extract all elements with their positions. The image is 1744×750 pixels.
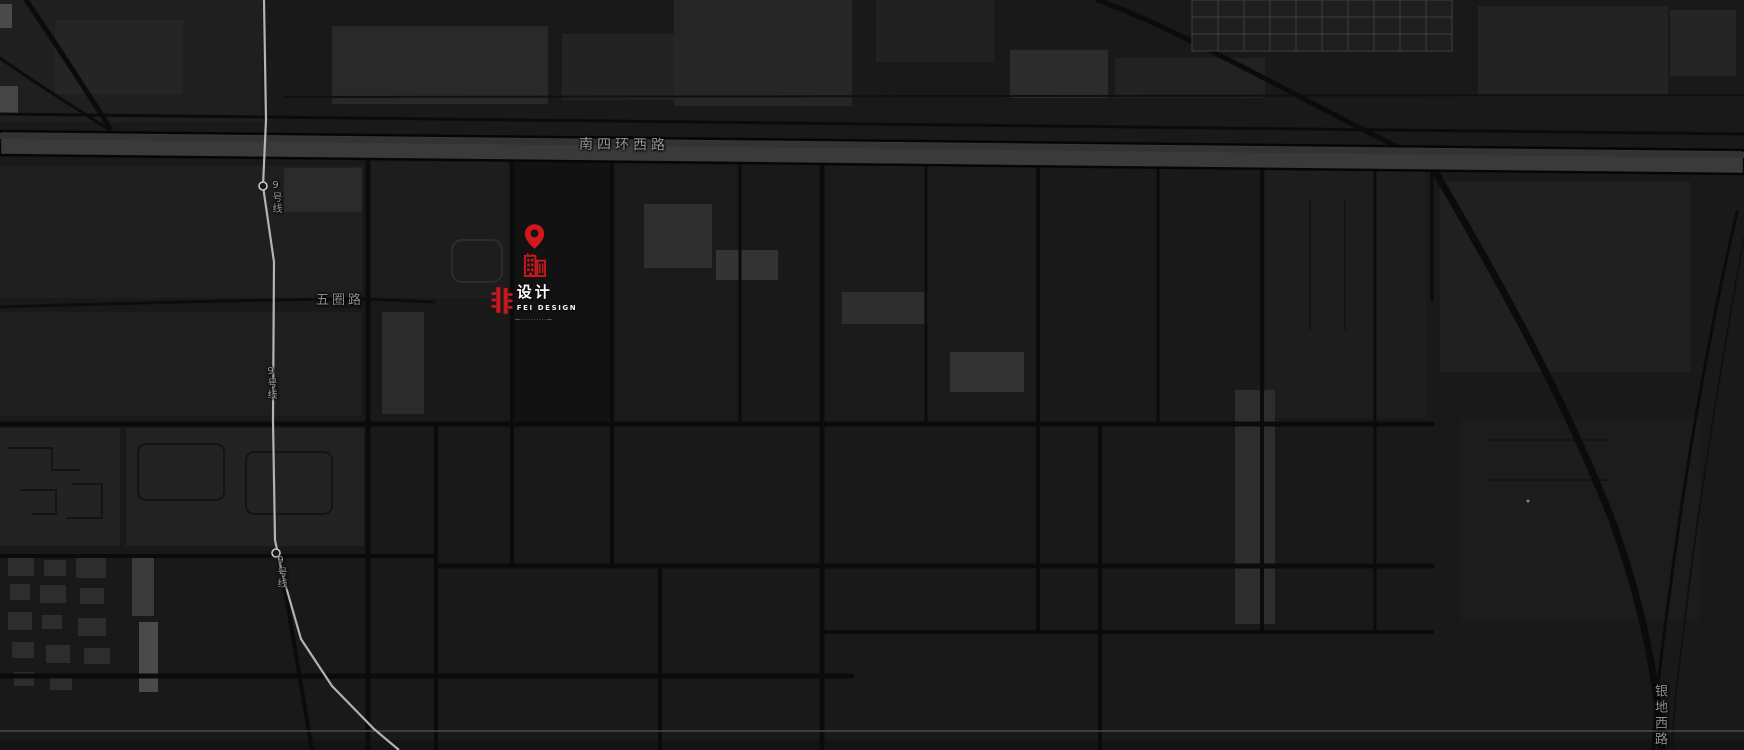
poi-dot bbox=[1527, 500, 1530, 503]
fei-seal-icon bbox=[491, 285, 513, 315]
brand-logo-text: 设计 FEI DESIGN bbox=[517, 285, 577, 312]
map-pin-icon bbox=[524, 223, 545, 250]
map-viewport[interactable]: 南四环西路 五圈路 9号线 9号线 9号线 银地西路 bbox=[0, 0, 1744, 750]
location-marker[interactable]: 设计 FEI DESIGN —··········— bbox=[484, 223, 584, 323]
brand-logo: 设计 FEI DESIGN bbox=[484, 285, 584, 315]
metro-station-icon bbox=[272, 549, 280, 557]
brand-tagline: —··········— bbox=[484, 318, 584, 323]
map-canvas bbox=[0, 0, 1744, 750]
office-buildings-icon bbox=[522, 251, 547, 278]
metro-station-icon bbox=[259, 182, 267, 190]
grid-area bbox=[1192, 0, 1452, 51]
brand-name-cn: 设计 bbox=[517, 285, 553, 301]
brand-name-en: FEI DESIGN bbox=[517, 304, 577, 312]
